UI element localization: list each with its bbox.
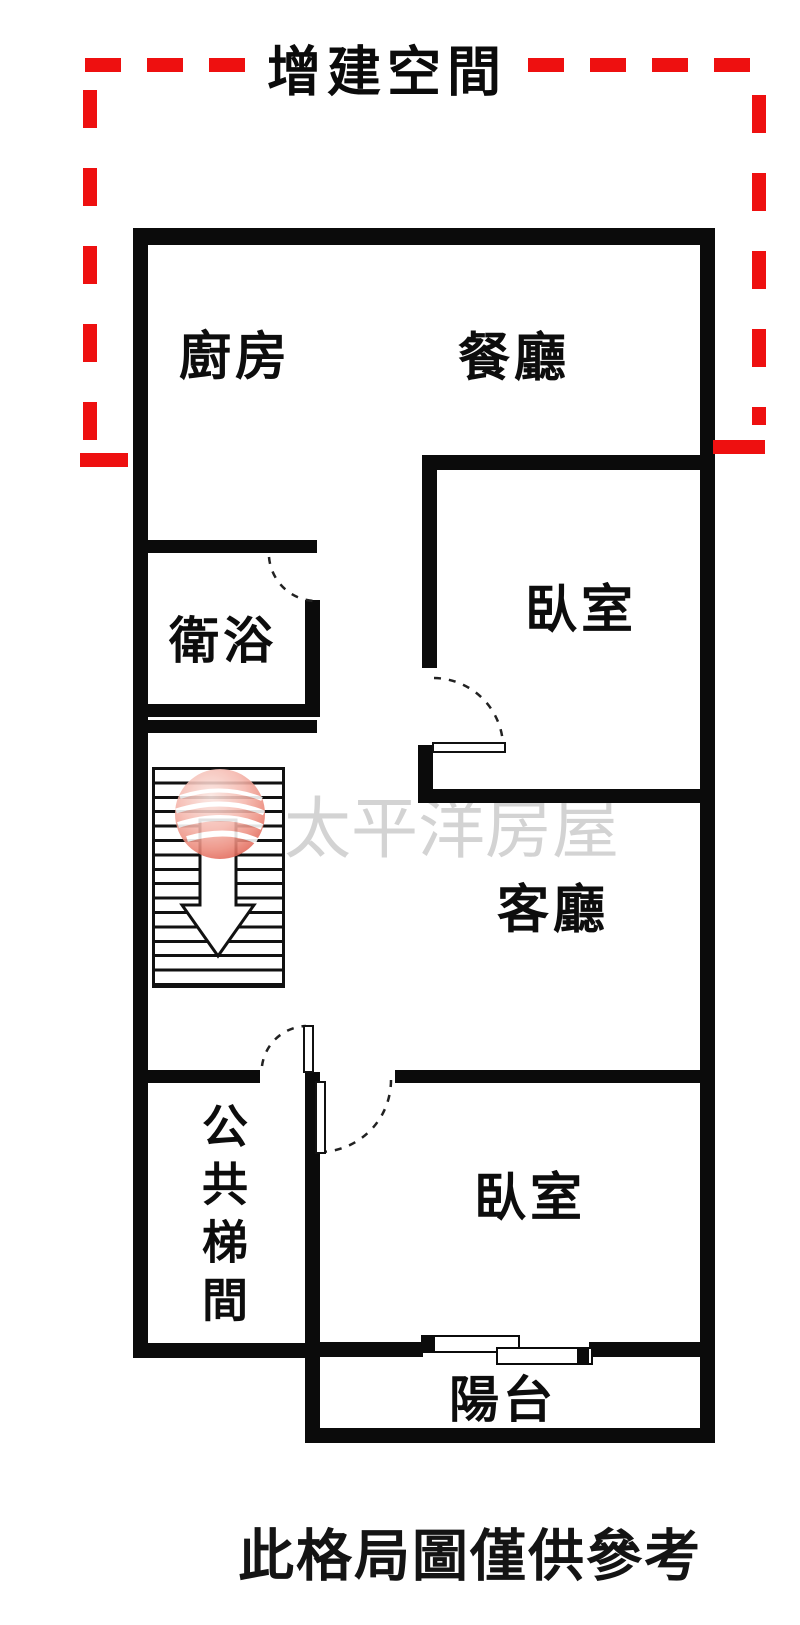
wall-bedroom-lower-bottom-left [305, 1342, 423, 1357]
annotation-dash-top-right [528, 58, 766, 72]
room-label-balcony: 陽台 [449, 1360, 557, 1432]
room-label-dining: 餐廳 [458, 316, 570, 391]
wall-stairwell-bottom [133, 1343, 320, 1358]
room-label-living: 客廳 [497, 868, 609, 943]
balcony-window-cap-right [577, 1348, 589, 1363]
room-label-bathroom: 衛浴 [169, 601, 277, 673]
annotation-dash-top-left [85, 58, 253, 72]
annotation-dash-right [752, 95, 766, 425]
wall-bedroom-upper-door-stub [418, 745, 433, 800]
wall-bedroom-upper-bottom [418, 789, 700, 803]
door-leaf-bedroom-upper [433, 743, 505, 752]
door-leaf-stairwell [304, 1026, 313, 1072]
door-arc-stairwell [262, 1026, 306, 1066]
room-label-public-stairwell: 公共梯間 [189, 1102, 255, 1334]
wall-bedroom-upper-left [422, 455, 437, 668]
caption-text: 此格局圖僅供參考 [238, 1512, 702, 1593]
annotation-dash-bottom-left [80, 453, 128, 467]
wall-bedroom-lower-bottom-right [589, 1342, 700, 1357]
wall-stairs-top [133, 720, 317, 733]
annotation-title: 增建空間 [267, 28, 507, 107]
wall-outer-left [133, 228, 148, 1358]
wall-living-bottom-left [148, 1070, 260, 1083]
wall-outer-right [700, 228, 715, 1443]
wall-bedroom-upper-top [437, 455, 715, 470]
wall-bathroom-top [145, 540, 317, 553]
door-arc-bedroom-upper [434, 678, 503, 744]
door-arc-bedroom-lower [320, 1079, 391, 1152]
wall-bathroom-right [305, 600, 320, 717]
wall-mid-vertical [305, 1072, 320, 1443]
floor-plan-canvas: 太平洋房屋 [0, 0, 800, 1625]
room-label-kitchen: 廚房 [179, 315, 291, 390]
balcony-window-cap-left [423, 1336, 435, 1351]
wall-bedroom-lower-top [395, 1070, 700, 1083]
wall-outer-top [133, 228, 715, 245]
room-label-bedroom-lower: 臥室 [474, 1156, 586, 1231]
wall-bathroom-bottom [145, 704, 320, 717]
door-arc-bathroom [269, 557, 314, 601]
staircase [152, 767, 285, 988]
annotation-dash-left [83, 90, 97, 440]
annotation-dash-bottom-right [713, 440, 765, 454]
room-label-bedroom-upper: 臥室 [525, 568, 637, 643]
